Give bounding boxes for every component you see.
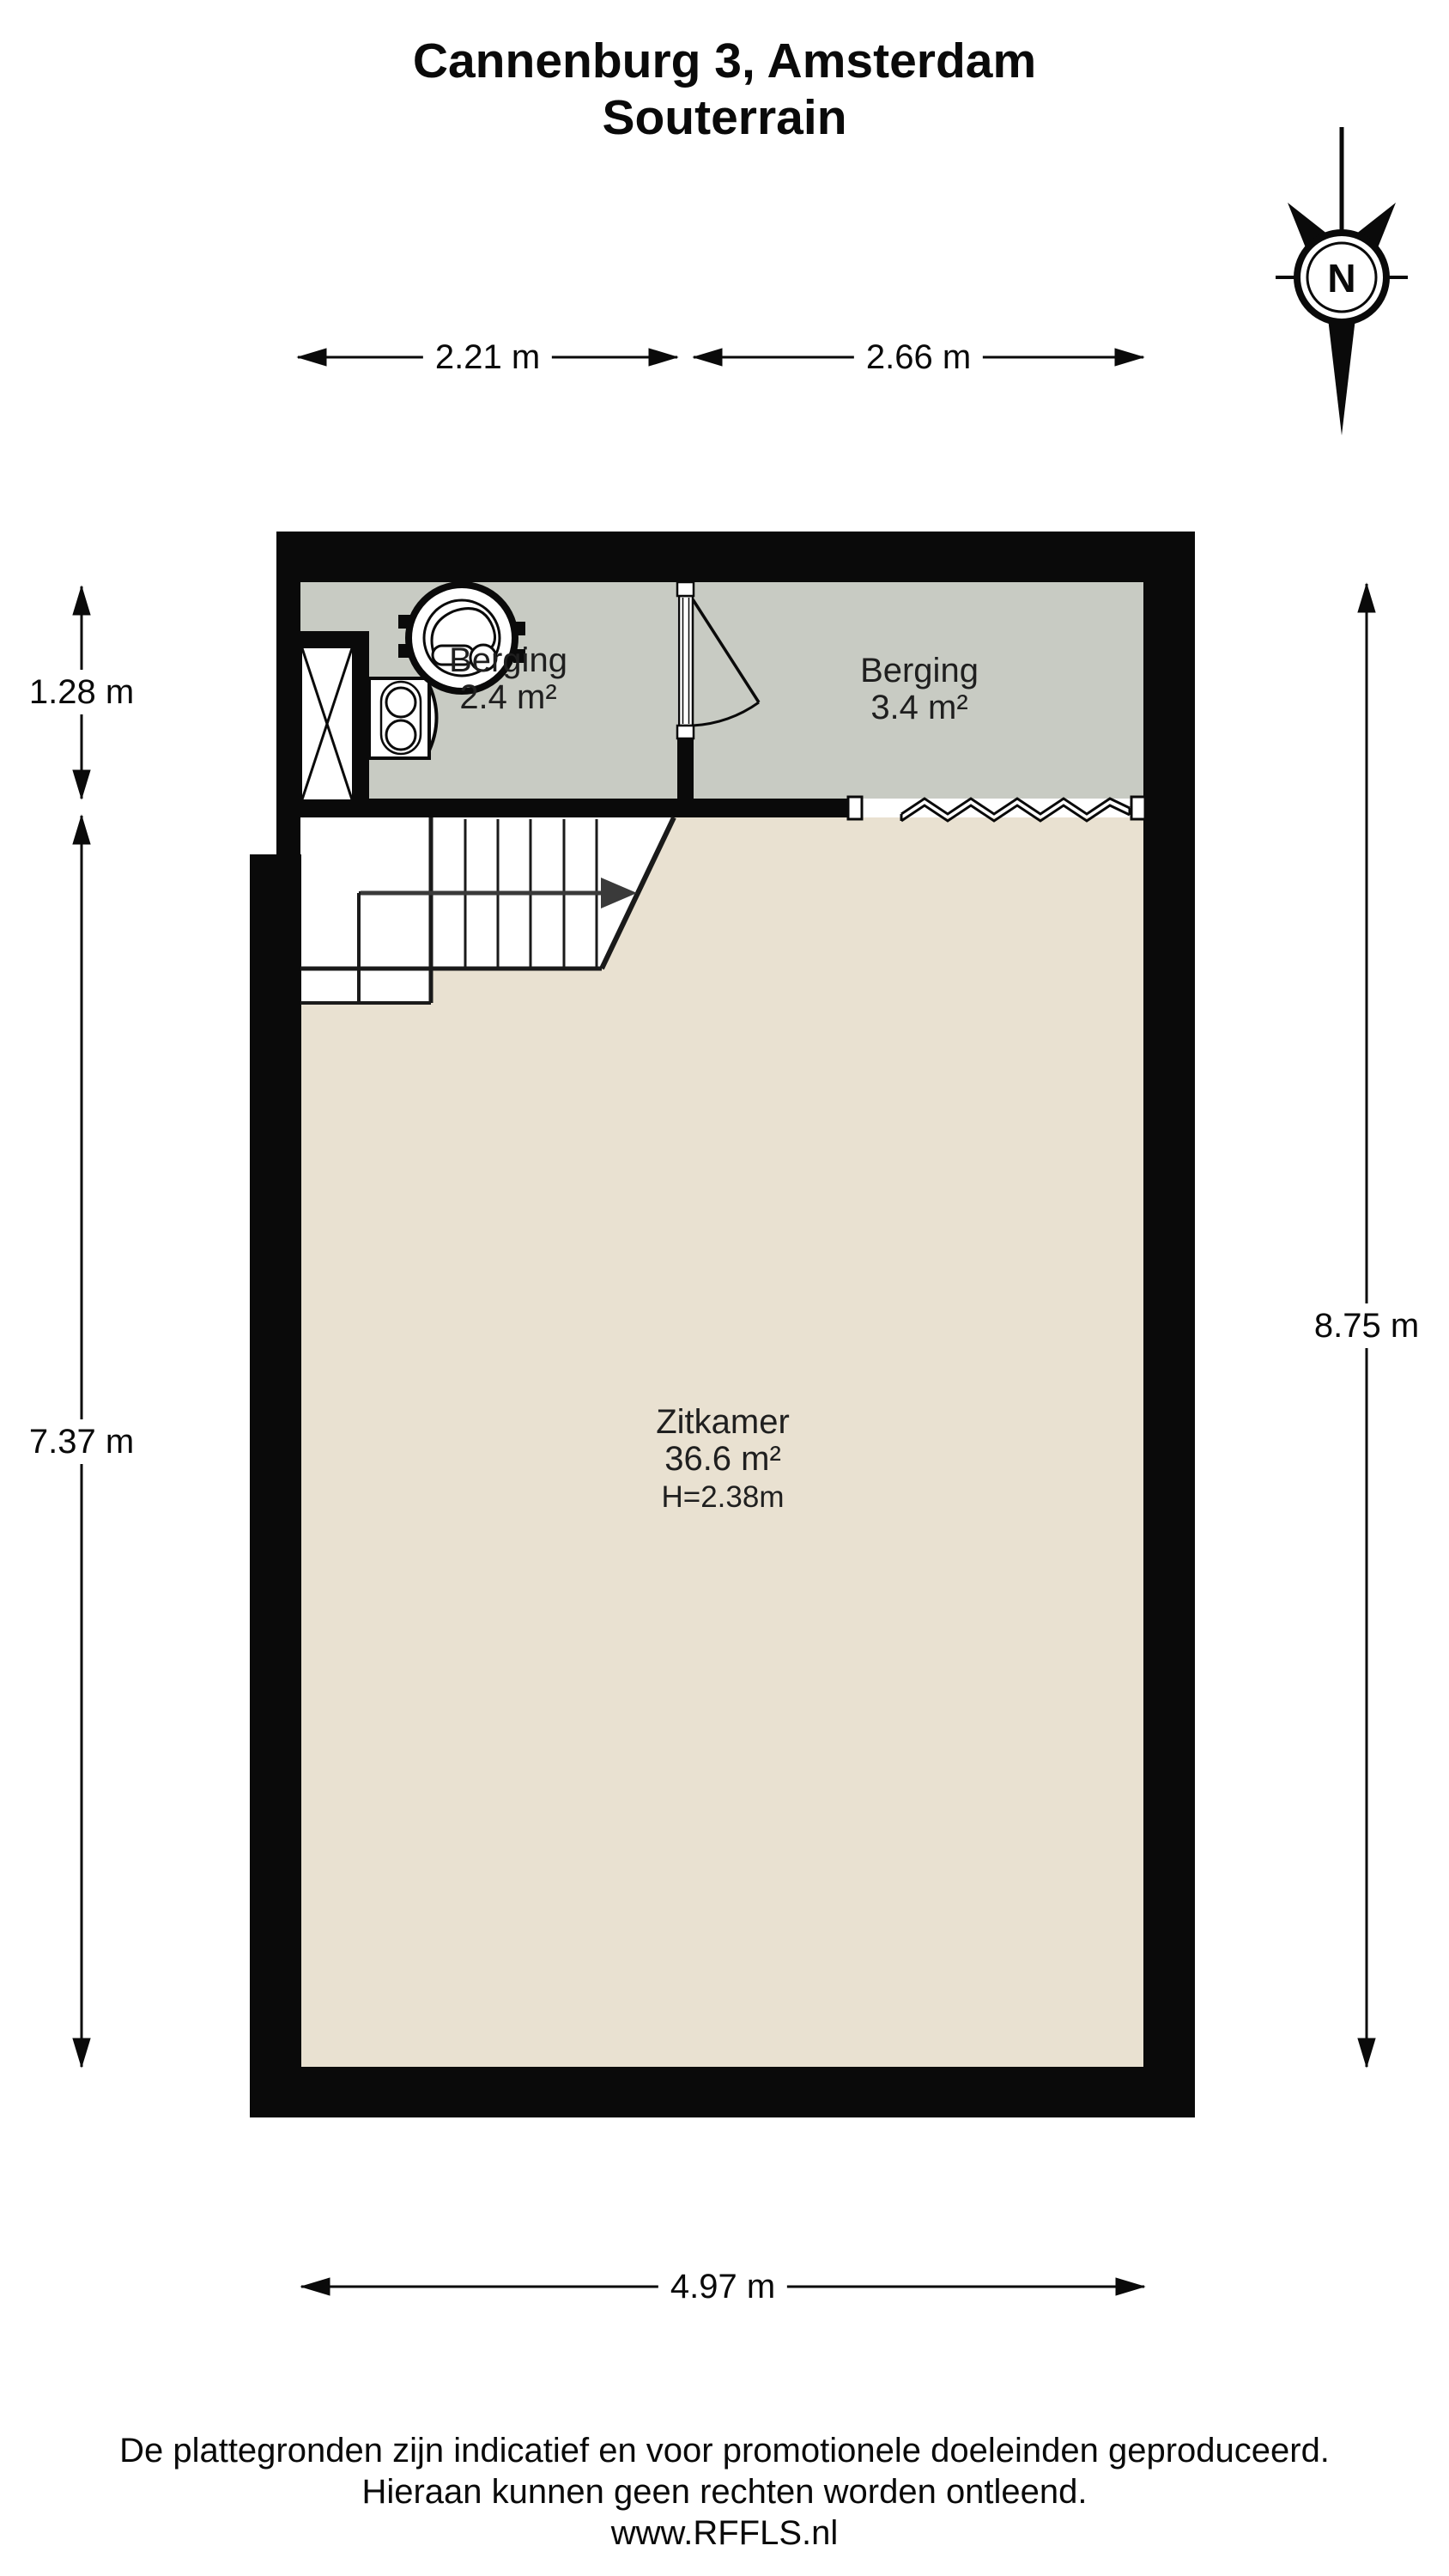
zigzag-opening-icon — [848, 797, 1145, 821]
wall-interior-horizontal — [300, 799, 848, 817]
room-area: 36.6 m² — [656, 1441, 790, 1478]
opening-post-left — [848, 797, 862, 819]
shaft-cross-icon — [300, 647, 354, 801]
opening-post-right — [1131, 797, 1145, 819]
disclaimer: De plattegronden zijn indicatief en voor… — [0, 2430, 1449, 2554]
room-ceiling-height: H=2.38m — [656, 1478, 790, 1517]
room-label-zitkamer: Zitkamer 36.6 m² H=2.38m — [656, 1404, 790, 1517]
website-url: www.RFFLS.nl — [0, 2512, 1449, 2554]
wall-bottom — [250, 2067, 1195, 2117]
washing-machine-icon — [369, 678, 437, 758]
room-area: 3.4 m² — [860, 690, 979, 726]
north-compass-icon: N — [1276, 127, 1408, 435]
floorplan-page: N Cannenburg 3, Amsterdam Souterrain 2.2… — [0, 0, 1449, 2576]
wall-shaft-top — [300, 631, 369, 647]
wall-top — [276, 532, 1195, 582]
room-label-berging-2: Berging 3.4 m² — [860, 653, 979, 726]
wall-left-lower — [250, 854, 301, 2117]
page-title: Cannenburg 3, Amsterdam Souterrain — [0, 33, 1449, 146]
room-name: Zitkamer — [656, 1404, 790, 1441]
floorplan-drawing: N — [0, 0, 1449, 2576]
room-area: 2.4 m² — [449, 679, 567, 716]
dimension-bottom: 4.97 m — [658, 2264, 787, 2309]
wall-right — [1143, 532, 1195, 2117]
door-leaf — [679, 596, 693, 726]
disclaimer-line-2: Hieraan kunnen geen rechten worden ontle… — [0, 2471, 1449, 2512]
room-label-berging-1: Berging 2.4 m² — [449, 642, 567, 716]
dimension-left-lower: 7.37 m — [17, 1419, 146, 1464]
door-jamb-bottom — [677, 726, 694, 738]
dimension-top-left: 2.21 m — [423, 335, 552, 380]
dimension-right: 8.75 m — [1302, 1303, 1431, 1348]
room-name: Berging — [860, 653, 979, 690]
title-address: Cannenburg 3, Amsterdam — [0, 33, 1449, 89]
title-floor: Souterrain — [0, 89, 1449, 146]
room-name: Berging — [449, 642, 567, 679]
dimension-left-upper: 1.28 m — [17, 670, 146, 714]
wall-berging-divider — [677, 738, 694, 817]
compass-north-label: N — [1327, 256, 1355, 301]
wall-shaft-right — [354, 647, 369, 801]
door-jamb-top — [677, 582, 694, 596]
dimension-top-right: 2.66 m — [854, 335, 983, 380]
wall-left-upper — [276, 532, 300, 854]
disclaimer-line-1: De plattegronden zijn indicatief en voor… — [0, 2430, 1449, 2471]
